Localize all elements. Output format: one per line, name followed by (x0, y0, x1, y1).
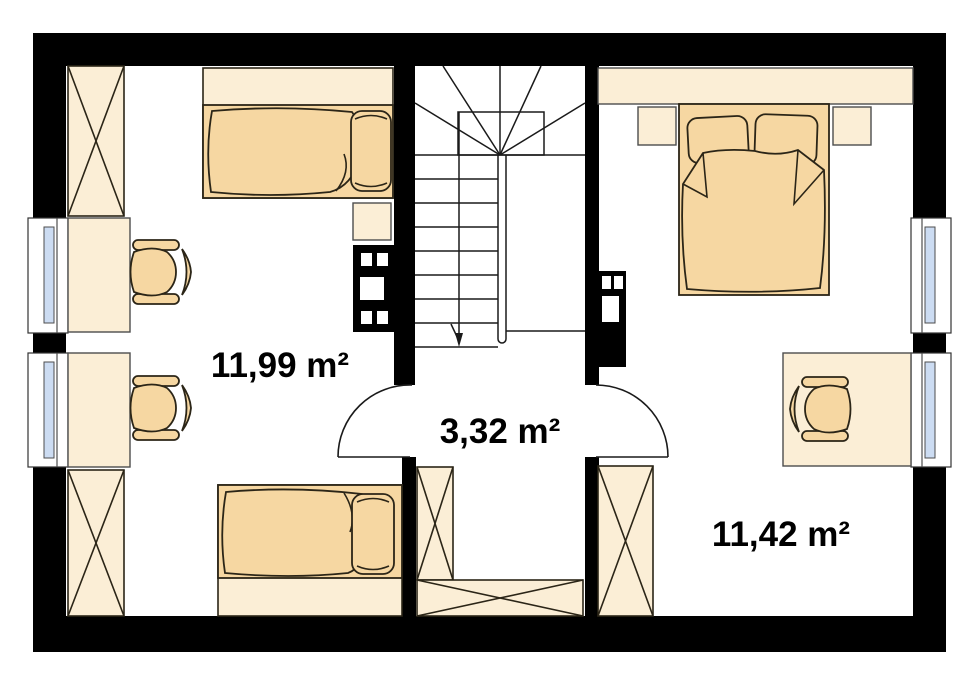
window-glass (44, 227, 54, 323)
wardrobe-right-room (598, 466, 653, 616)
wall-bottom (33, 616, 946, 652)
area-label-hall: 3,32 m² (440, 412, 561, 451)
door-swing-arc (596, 385, 668, 457)
chimney-right (598, 271, 626, 367)
closet-hall-bottom (417, 580, 583, 616)
stair-landing-box (458, 112, 544, 155)
single-bed-bottom (218, 485, 402, 616)
window-glass (925, 362, 935, 458)
duvet (208, 108, 361, 195)
wall-stairwell-left (394, 66, 415, 385)
stair-treads (415, 155, 585, 347)
area-label-bedroom-right: 11,42 m² (712, 515, 850, 554)
desk-left-2 (68, 353, 130, 467)
wall-stub-left (402, 457, 416, 616)
window-glass (925, 227, 935, 323)
desk-left-1 (68, 218, 130, 332)
nightstand-left-room (353, 203, 391, 240)
floor-plan-page: 11,99 m² 3,32 m² 11,42 m² (0, 0, 979, 686)
wardrobe-left-top (68, 66, 124, 216)
nightstand-right-1 (638, 107, 676, 145)
nightstand-right-2 (833, 107, 871, 145)
door-left-bedroom (338, 385, 412, 457)
window-left-1 (28, 218, 68, 333)
wall-right-upper (913, 33, 946, 218)
window-glass (44, 362, 54, 458)
wardrobe-left-bottom (68, 470, 124, 616)
single-bed-top (203, 68, 393, 198)
desk-chair-left-2 (131, 376, 192, 440)
pillow (351, 111, 391, 191)
door-swing-arc (338, 385, 412, 457)
headboard-shelf (598, 68, 913, 104)
wall-right-lower (913, 467, 946, 652)
wall-left-lower (33, 467, 66, 652)
stair-direction-arrow (455, 333, 463, 347)
stair-handrail (498, 155, 506, 343)
window-right-2 (911, 353, 951, 467)
desk-chair-left-1 (131, 240, 192, 304)
duvet (682, 150, 825, 292)
pillow (352, 494, 394, 574)
wall-left-upper (33, 33, 66, 218)
wall-left-mid (33, 333, 66, 353)
closet-hall-left (417, 467, 453, 580)
window-left-2 (28, 353, 68, 467)
stair-walk-line (451, 112, 463, 347)
staircase (415, 66, 585, 347)
wall-top (33, 33, 946, 66)
window-right-1 (911, 218, 951, 333)
area-label-bedroom-left: 11,99 m² (211, 346, 349, 385)
chimney-left (353, 245, 395, 332)
stair-winders (415, 66, 585, 155)
double-bed (679, 104, 829, 295)
floor-plan: 11,99 m² 3,32 m² 11,42 m² (0, 0, 979, 686)
wall-right-mid (913, 333, 946, 353)
wall-stub-right (585, 457, 599, 616)
wall-stairwell-right (585, 66, 599, 385)
door-right-bedroom (596, 385, 668, 457)
